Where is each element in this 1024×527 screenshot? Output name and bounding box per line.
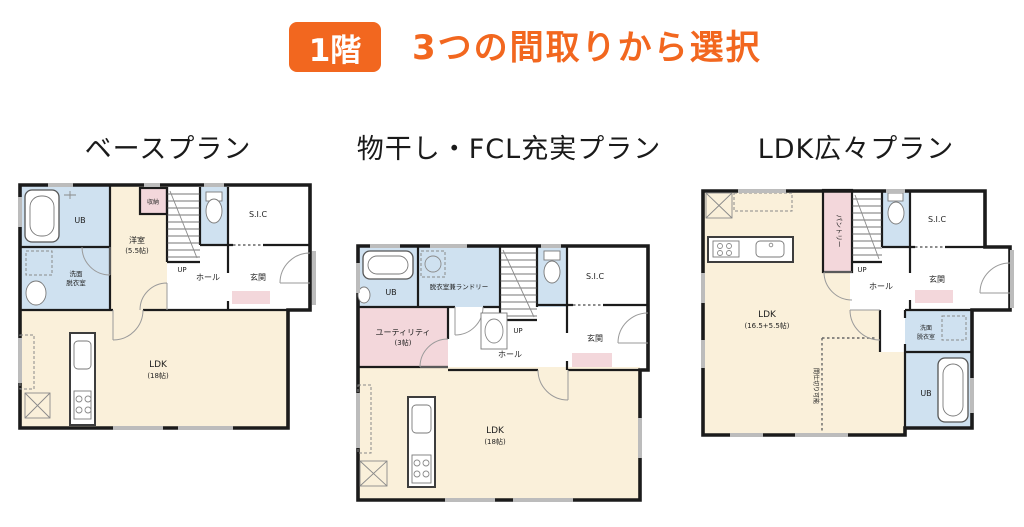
entrance-mat: [915, 290, 953, 303]
toilet-tank: [544, 251, 560, 260]
floorplan-base-plan: UB 洗面 脱衣室 洋室 (5.5帖) 収納 UP ホール 玄関 S.I.C L…: [18, 183, 318, 433]
label-entrance: 玄関: [929, 274, 945, 284]
label-utility-size: (3帖): [395, 338, 412, 347]
basin: [26, 281, 46, 305]
label-bedroom-size: (5.5帖): [125, 246, 149, 255]
label-sic: S.I.C: [928, 215, 947, 224]
stove: [74, 391, 91, 419]
label-ldk-size: (18帖): [484, 437, 506, 446]
label-pantry: パントリー: [835, 215, 843, 248]
room-washroom: [905, 310, 972, 352]
label-washroom-2: 脱衣室: [66, 278, 86, 287]
label-ub: UB: [920, 389, 931, 398]
label-entrance: 玄関: [250, 272, 266, 282]
kitchen-sink: [412, 405, 431, 433]
toilet-bowl: [888, 202, 904, 224]
rooms: [20, 185, 288, 428]
entrance-mat: [572, 353, 612, 367]
corridor: [880, 310, 905, 352]
label-washroom-1: 洗面: [920, 324, 932, 332]
label-hall: ホール: [498, 350, 522, 359]
label-laundry: 脱衣室兼ランドリー: [430, 282, 489, 291]
stairs: [167, 191, 200, 258]
label-up: UP: [857, 266, 866, 274]
floor-badge: 1階: [289, 22, 381, 72]
label-sic: S.I.C: [586, 272, 605, 281]
label-bedroom: 洋室: [129, 235, 145, 245]
label-ldk: LDK: [149, 360, 168, 370]
stove: [412, 455, 431, 483]
page-title: 3つの間取りから選択: [412, 22, 762, 72]
label-washroom-2: 脱衣室: [917, 333, 935, 341]
plan-title-ldk-wide: LDK広々プラン: [695, 120, 1017, 180]
label-closet: 収納: [147, 198, 159, 206]
floorplan-ldk-wide-plan: パントリー UP ホール 玄関 S.I.C 洗面 脱衣室 UB LDK (16.…: [700, 188, 1015, 438]
label-ldk: LDK: [758, 310, 777, 320]
label-utility: ユーティリティ: [375, 328, 430, 337]
label-hall: ホール: [196, 273, 220, 282]
entrance-mat: [232, 291, 270, 304]
label-partition: 間仕切り可能: [812, 368, 820, 404]
label-hall: ホール: [869, 282, 893, 291]
label-ub: UB: [385, 288, 396, 297]
stairs: [500, 250, 537, 317]
label-ldk-size: (18帖): [147, 371, 169, 380]
room-laundry: [418, 246, 500, 307]
label-up: UP: [513, 327, 522, 335]
room-utility: [358, 307, 448, 367]
toilet-bowl: [544, 261, 560, 283]
toilet-tank: [888, 193, 903, 201]
label-entrance: 玄関: [587, 333, 603, 343]
label-washroom-1: 洗面: [70, 269, 84, 278]
plan-title-base: ベースプラン: [18, 120, 318, 180]
label-ldk-size: (16.5+5.5帖): [744, 321, 789, 330]
label-sic: S.I.C: [249, 210, 268, 219]
label-up: UP: [177, 266, 186, 274]
stove: [713, 241, 739, 257]
label-ldk: LDK: [486, 426, 505, 436]
kitchen-sink: [74, 341, 91, 369]
floorplan-laundry-fcl-plan: UB 脱衣室兼ランドリー ユーティリティ (3帖) UP ホール 玄関 S.I.…: [355, 243, 650, 503]
label-ub: UB: [74, 216, 85, 225]
plan-title-laundry-fcl: 物干し・FCL充実プラン: [348, 120, 670, 180]
toilet-bowl: [206, 199, 222, 223]
